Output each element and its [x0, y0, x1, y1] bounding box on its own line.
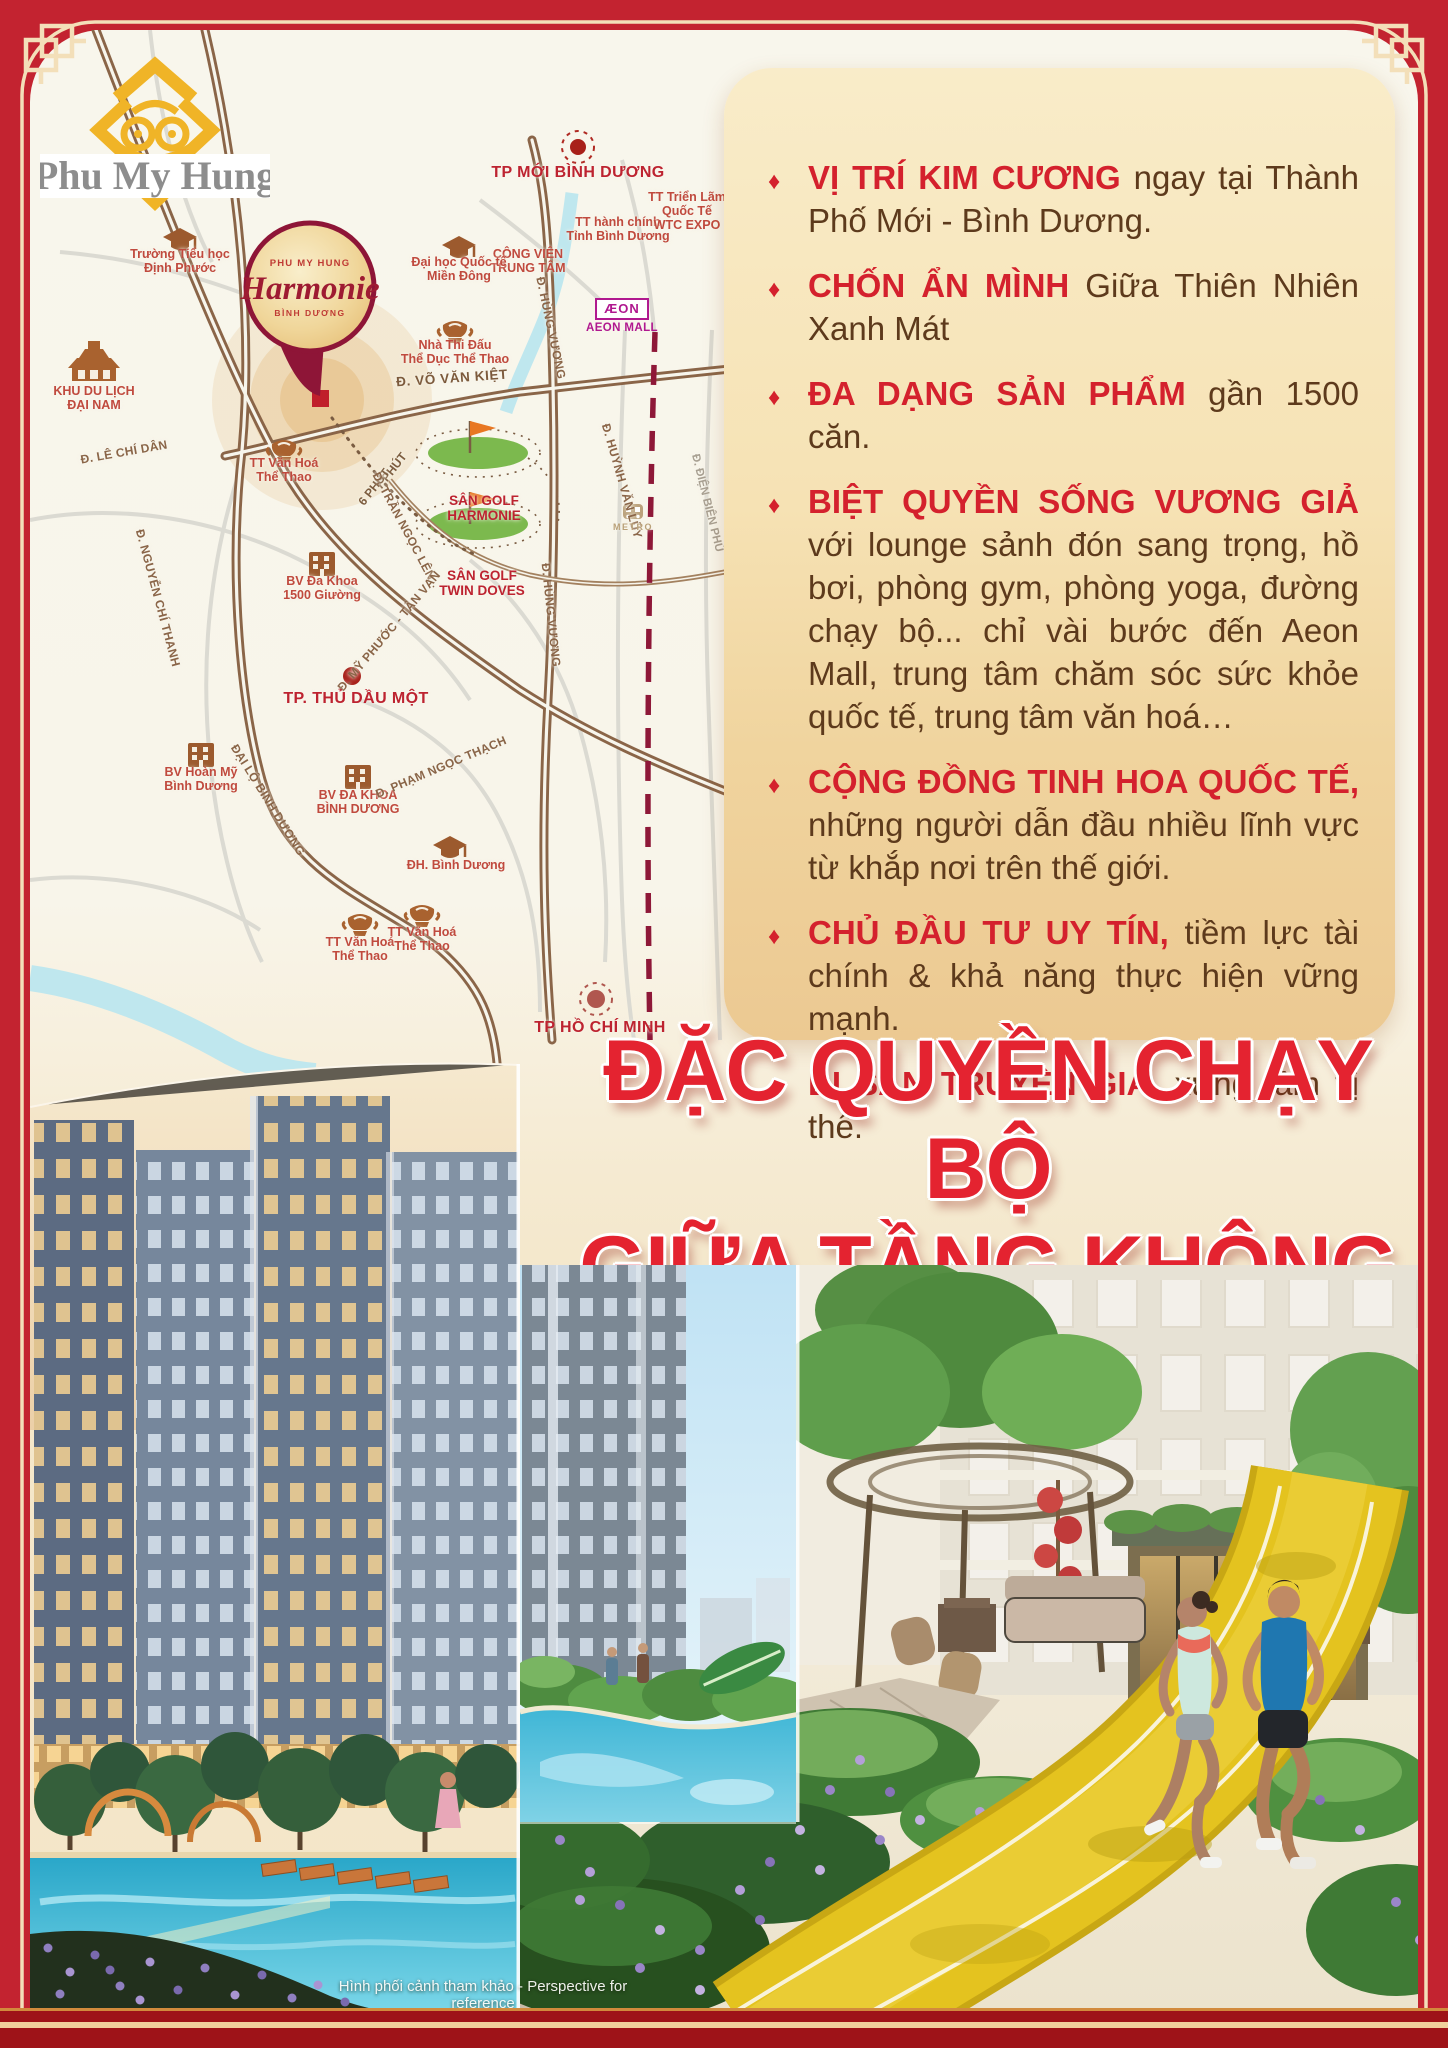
- decorative-frame: [0, 0, 1448, 2048]
- poster-page: PHU MY HUNG Harmonie BÌNH DƯƠNG TP MỚI B…: [0, 0, 1448, 2048]
